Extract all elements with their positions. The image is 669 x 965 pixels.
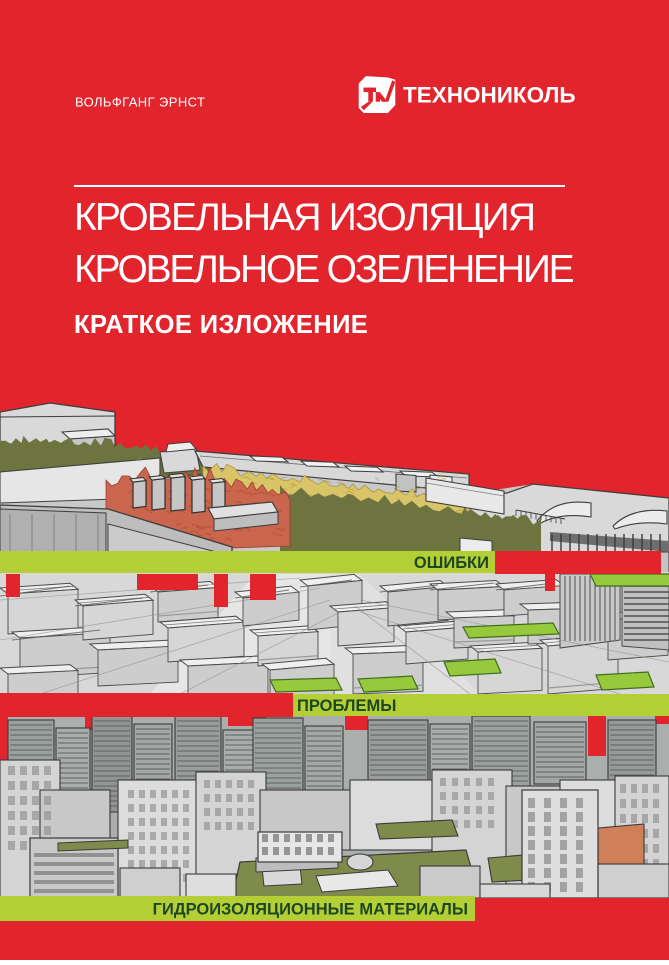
svg-text:КРОВЕЛЬНАЯ ИЗОЛЯЦИЯ: КРОВЕЛЬНАЯ ИЗОЛЯЦИЯ bbox=[74, 196, 534, 239]
svg-text:КРОВЕЛЬНОЕ ОЗЕЛЕНЕНИЕ: КРОВЕЛЬНОЕ ОЗЕЛЕНЕНИЕ bbox=[74, 248, 574, 291]
svg-text:ОШИБКИ: ОШИБКИ bbox=[414, 554, 489, 572]
svg-text:ВОЛЬФГАНГ ЭРНСТ: ВОЛЬФГАНГ ЭРНСТ bbox=[75, 95, 205, 110]
svg-text:КРАТКОЕ ИЗЛОЖЕНИЕ: КРАТКОЕ ИЗЛОЖЕНИЕ bbox=[74, 311, 368, 339]
svg-text:ТЕХНОНИКОЛЬ: ТЕХНОНИКОЛЬ bbox=[403, 83, 576, 108]
svg-text:ГИДРОИЗОЛЯЦИОННЫЕ МАТЕРИАЛЫ: ГИДРОИЗОЛЯЦИОННЫЕ МАТЕРИАЛЫ bbox=[153, 901, 468, 919]
svg-text:ПРОБЛЕМЫ: ПРОБЛЕМЫ bbox=[297, 697, 396, 715]
